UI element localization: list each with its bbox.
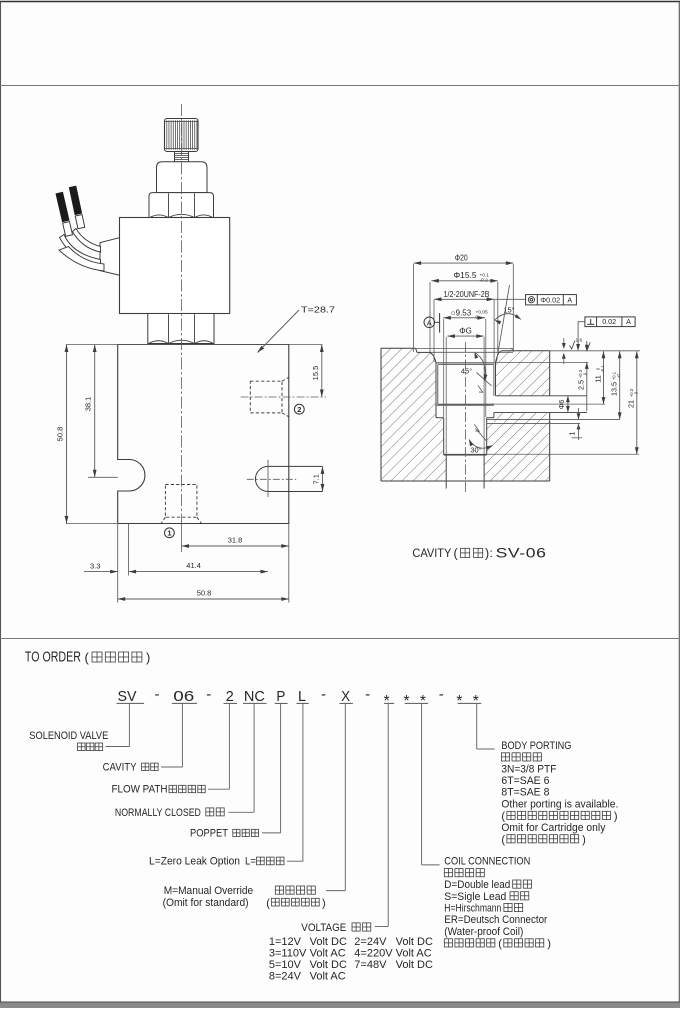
svg-text:P: P: [276, 688, 285, 705]
svg-text:1=12V: 1=12V: [269, 936, 302, 948]
svg-text:SV: SV: [118, 688, 137, 705]
svg-text:8=24V: 8=24V: [269, 971, 302, 983]
svg-text:(: (: [498, 938, 502, 950]
svg-text:41.4: 41.4: [186, 561, 201, 570]
svg-text:): ): [322, 897, 326, 909]
svg-text:(: (: [85, 650, 90, 665]
svg-text:Omit for Cartridge only: Omit for Cartridge only: [501, 822, 605, 834]
svg-text:1.6: 1.6: [576, 338, 583, 344]
svg-text:Φ20: Φ20: [455, 252, 468, 262]
svg-text:13.5: 13.5: [610, 382, 619, 396]
svg-text:L=: L=: [245, 856, 256, 868]
svg-text:VOLTAGE: VOLTAGE: [301, 922, 346, 934]
svg-text:): ): [582, 834, 586, 846]
svg-text:Φ6: Φ6: [559, 400, 566, 410]
svg-text:38.1: 38.1: [84, 397, 93, 412]
svg-text:-0.2: -0.2: [480, 277, 489, 283]
svg-text:0: 0: [476, 315, 479, 321]
svg-text:6T=SAE 6: 6T=SAE 6: [501, 775, 549, 787]
svg-text:SOLENOID VALVE: SOLENOID VALVE: [29, 730, 108, 742]
svg-text:7.1: 7.1: [312, 474, 321, 484]
svg-text:(: (: [266, 897, 270, 909]
svg-text:NC: NC: [244, 688, 265, 705]
svg-text:S=Sigle Lead: S=Sigle Lead: [444, 891, 506, 903]
svg-text:5=10V: 5=10V: [269, 959, 302, 971]
svg-text:2.5: 2.5: [577, 380, 586, 390]
svg-text:(Water-proof Coil): (Water-proof Coil): [444, 926, 523, 938]
svg-text:50.8: 50.8: [197, 589, 212, 598]
svg-text:A: A: [427, 318, 432, 327]
svg-text:Volt DC: Volt DC: [396, 936, 433, 948]
svg-text:(: (: [501, 834, 505, 846]
svg-text:3.3: 3.3: [90, 562, 100, 571]
svg-text:3N=3/8 PTF: 3N=3/8 PTF: [501, 763, 556, 775]
svg-text:-: -: [365, 686, 370, 703]
svg-text:T=28.7: T=28.7: [301, 306, 336, 315]
svg-text:Φ0.02: Φ0.02: [540, 296, 560, 305]
svg-text:06: 06: [173, 688, 194, 705]
svg-text:Volt DC: Volt DC: [310, 959, 347, 971]
svg-text:TO ORDER: TO ORDER: [25, 650, 81, 666]
svg-text:8T=SAE 8: 8T=SAE 8: [501, 787, 549, 799]
svg-text:2=24V: 2=24V: [354, 936, 387, 948]
svg-text:H=Hirschmann: H=Hirschmann: [444, 903, 501, 915]
svg-text:BODY PORTING: BODY PORTING: [501, 740, 571, 752]
svg-text:1: 1: [568, 432, 577, 436]
svg-text:21: 21: [627, 400, 636, 408]
svg-text:(Omit for standard): (Omit for standard): [163, 897, 249, 909]
svg-text:Volt AC: Volt AC: [310, 971, 346, 983]
svg-text:-: -: [155, 686, 160, 703]
svg-text:FLOW PATH: FLOW PATH: [112, 784, 168, 796]
svg-text:L: L: [298, 688, 306, 705]
svg-text:○9.53: ○9.53: [451, 308, 472, 317]
svg-text:CAVITY: CAVITY: [412, 546, 451, 560]
svg-text:A: A: [567, 296, 572, 305]
svg-text:CAVITY: CAVITY: [103, 762, 138, 774]
svg-text:3=110V: 3=110V: [269, 947, 307, 959]
svg-text:1/2-20UNF-2B: 1/2-20UNF-2B: [444, 290, 490, 299]
svg-text:COIL CONNECTION: COIL CONNECTION: [444, 856, 530, 868]
svg-text:POPPET: POPPET: [190, 827, 228, 839]
svg-text:(: (: [501, 811, 505, 823]
svg-text:SV-06: SV-06: [496, 546, 547, 561]
svg-text:M=Manual Override: M=Manual Override: [164, 885, 254, 897]
svg-text:Φ15.5: Φ15.5: [454, 270, 477, 280]
svg-text:Volt DC: Volt DC: [396, 959, 433, 971]
svg-text:2: 2: [297, 405, 301, 414]
svg-text:L=Zero Leak Option: L=Zero Leak Option: [149, 856, 240, 868]
svg-text:-: -: [206, 686, 211, 703]
svg-text:45°: 45°: [461, 367, 472, 376]
svg-text:0.02: 0.02: [602, 317, 616, 326]
svg-text:31.8: 31.8: [228, 536, 243, 545]
svg-text:D=Double lead: D=Double lead: [444, 879, 510, 891]
svg-text:-0: -0: [616, 373, 621, 377]
svg-text:Volt AC: Volt AC: [310, 947, 346, 959]
svg-text:7=48V: 7=48V: [354, 959, 387, 971]
svg-text:1: 1: [167, 529, 171, 538]
svg-text:ER=Deutsch Connector: ER=Deutsch Connector: [444, 914, 547, 926]
svg-text:4=220V: 4=220V: [354, 947, 393, 959]
svg-text:11: 11: [593, 375, 602, 382]
svg-text:X: X: [341, 688, 350, 705]
svg-text:ΦG: ΦG: [459, 327, 472, 336]
svg-text:Volt AC: Volt AC: [396, 947, 432, 959]
svg-text:Other porting is available.: Other porting is available.: [501, 798, 618, 810]
svg-text::: :: [490, 546, 493, 560]
svg-text:): ): [146, 650, 150, 665]
svg-text:50.8: 50.8: [56, 427, 65, 442]
svg-text:Volt DC: Volt DC: [310, 936, 347, 948]
svg-text:2: 2: [226, 688, 234, 705]
svg-text:-0.1: -0.1: [600, 365, 605, 373]
svg-text:-: -: [439, 686, 444, 703]
svg-text:A: A: [626, 317, 631, 326]
svg-text:15.5: 15.5: [311, 366, 320, 381]
svg-text:): ): [547, 938, 551, 950]
svg-text:* *: * *: [404, 693, 429, 710]
svg-text:NORMALLY CLOSED: NORMALLY CLOSED: [115, 807, 201, 819]
svg-text:): ): [614, 811, 618, 823]
svg-text:* *: * *: [456, 693, 481, 710]
svg-text:-: -: [321, 686, 326, 703]
